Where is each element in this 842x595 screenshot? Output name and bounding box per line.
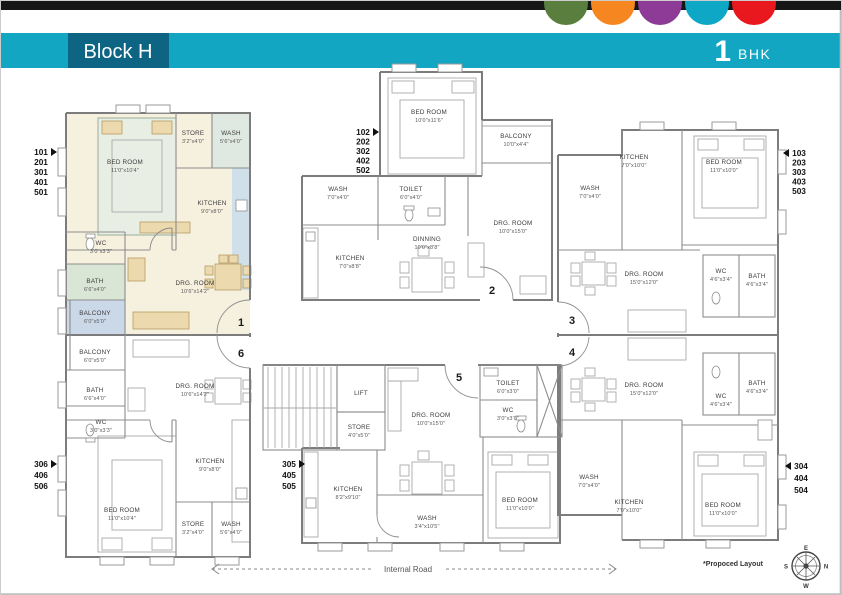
room-label-u1-bedroom: BED ROOM (107, 159, 143, 166)
room-label-u5-kitchen: KITCHEN (333, 486, 362, 493)
room-label-u2-kitchen: KITCHEN (335, 255, 364, 262)
room-label-u4-kitchen: KITCHEN (614, 499, 643, 506)
header: Block H 1 BHK (0, 0, 842, 68)
stack-label: 501 (34, 187, 48, 197)
room-label-u3-wc: WC (716, 268, 727, 275)
room-dims-u6-store: 3'2"x4'0" (182, 530, 204, 536)
stack-mid-top: 102 202 302 402 502 (356, 127, 379, 175)
room-dims-u5-drg: 10'0"x15'0" (417, 421, 445, 427)
room-label-u1-wc: WC (96, 240, 107, 247)
room-dims-u1-wash: 5'6"x4'0" (220, 139, 242, 145)
room-dims-u5-wash: 3'4"x10'5" (414, 524, 439, 530)
room-label-u4-bath: BATH (748, 380, 765, 387)
brand-dot-teal (685, 0, 729, 25)
room-dims-u6-kitchen: 9'0"x8'0" (199, 467, 221, 473)
room-dims-u2-bedroom: 10'0"x11'6" (415, 118, 443, 124)
arrow-right-icon (51, 148, 57, 156)
room-label-u2-balcony: BALCONY (500, 133, 532, 140)
room-dims-u3-wc: 4'6"x3'4" (710, 277, 732, 283)
room-label-u5-wash: WASH (417, 515, 437, 522)
bhk-label: BHK (738, 46, 771, 62)
room-dims-u4-kitchen: 7'0"x10'0" (616, 508, 641, 514)
door-number-3: 3 (569, 315, 575, 327)
room-label-u2-dinning: DINNING (413, 236, 441, 243)
room-dims-u3-bath: 4'6"x3'4" (746, 282, 768, 288)
room-dims-u6-drg: 10'6"x14'2" (181, 392, 209, 398)
room-dims-u1-drg: 10'6"x14'2" (181, 289, 209, 295)
brand-dot-green (544, 0, 588, 25)
stack-label: 404 (794, 473, 808, 483)
room-label-u5-drg: DRG. ROOM (412, 412, 451, 419)
stack-label: 201 (34, 157, 48, 167)
arrow-right-icon (373, 128, 379, 136)
door-number-4: 4 (569, 347, 576, 359)
stack-right-bottom: 304 404 504 (785, 461, 808, 495)
room-label-u3-kitchen: KITCHEN (619, 154, 648, 161)
stack-label: 103 (792, 148, 806, 158)
room-dims-u4-wash: 7'0"x4'0" (578, 483, 600, 489)
stack-label: 406 (34, 470, 48, 480)
compass-rose: E N S W (784, 546, 828, 590)
floor-plan-page: Block H 1 BHK (0, 0, 842, 595)
compass-right-label: N (824, 565, 828, 571)
room-dims-u4-drg: 15'0"x12'0" (630, 391, 658, 397)
stack-left-bottom: 306 406 506 (34, 459, 57, 491)
room-dims-u4-wc: 4'6"x3'4" (710, 402, 732, 408)
bhk-number: 1 (714, 35, 731, 68)
door-number-6: 6 (238, 348, 244, 360)
room-dims-u1-balcony: 6'0"x5'0" (84, 319, 106, 325)
arrow-right-icon (51, 460, 57, 468)
room-dims-u3-drg: 15'0"x12'0" (630, 280, 658, 286)
room-label-u3-wash: WASH (580, 185, 600, 192)
room-label-u1-wash: WASH (221, 130, 241, 137)
room-label-u2-drg: DRG. ROOM (494, 220, 533, 227)
stack-label: 301 (34, 167, 48, 177)
room-label-u5-wc: WC (503, 407, 514, 414)
room-label-u2-wash: WASH (328, 186, 348, 193)
room-dims-u2-wash: 7'0"x4'0" (327, 195, 349, 201)
room-label-u6-bath: BATH (86, 387, 103, 394)
room-label-u6-store: STORE (182, 521, 205, 528)
compass-bottom-label: W (803, 584, 809, 590)
room-label-u5-store: STORE (348, 424, 371, 431)
room-dims-u1-bath: 6'6"x4'0" (84, 287, 106, 293)
room-label-u3-bedroom: BED ROOM (706, 159, 742, 166)
stack-label: 202 (356, 137, 370, 147)
room-label-u6-bedroom: BED ROOM (104, 507, 140, 514)
room-label-u1-bath: BATH (86, 278, 103, 285)
room-label-u5-bedroom: BED ROOM (502, 497, 538, 504)
stack-label: 303 (792, 167, 806, 177)
room-dims-u2-balcony: 10'0"x4'4" (503, 142, 528, 148)
room-dims-u3-kitchen: 7'0"x10'0" (621, 163, 646, 169)
room-dims-u5-kitchen: 8'2"x9'10" (335, 495, 360, 501)
internal-road-label: Internal Road (384, 565, 432, 574)
room-label-u1-kitchen: KITCHEN (197, 200, 226, 207)
room-dims-u6-wash: 5'6"x4'0" (220, 530, 242, 536)
stack-label: 403 (792, 177, 806, 187)
room-label-u2-toilet: TOILET (399, 186, 422, 193)
room-dims-u4-bath: 4'6"x3'4" (746, 389, 768, 395)
stack-label: 502 (356, 165, 370, 175)
room-dims-u5-wc: 3'0"x3'0" (497, 416, 519, 422)
room-dims-u6-balcony: 6'0"x5'0" (84, 358, 106, 364)
room-label-u3-bath: BATH (748, 273, 765, 280)
floor-plan-canvas: Block H 1 BHK (0, 0, 842, 595)
room-dims-u6-bath: 6'6"x4'0" (84, 396, 106, 402)
room-dims-u5-store: 4'0"x5'0" (348, 433, 370, 439)
stack-label: 401 (34, 177, 48, 187)
room-label-u1-store: STORE (182, 130, 205, 137)
door-number-5: 5 (456, 372, 462, 384)
room-dims-u3-bedroom: 11'0"x10'0" (710, 168, 738, 174)
stack-label: 203 (792, 158, 806, 168)
room-label-u6-kitchen: KITCHEN (195, 458, 224, 465)
room-label-u6-drg: DRG. ROOM (176, 383, 215, 390)
compass-left-label: S (784, 565, 788, 571)
room-label-u6-wc: WC (96, 419, 107, 426)
unit6-labels: BALCONY 6'0"x5'0" BATH 6'6"x4'0" WC 3'0"… (79, 349, 242, 536)
stack-label: 306 (34, 459, 48, 469)
stack-label: 402 (356, 156, 370, 166)
stack-label: 101 (34, 147, 48, 157)
room-dims-u3-wash: 7'0"x4'0" (579, 194, 601, 200)
door-number-1: 1 (238, 317, 244, 329)
compass-top-label: E (804, 546, 808, 552)
room-dims-u2-toilet: 6'0"x4'0" (400, 195, 422, 201)
room-label-u3-drg: DRG. ROOM (625, 271, 664, 278)
stack-label: 302 (356, 146, 370, 156)
brand-dot-red (732, 0, 776, 25)
stack-label: 304 (794, 461, 808, 471)
room-dims-u2-dinning: 10'0"x8'8" (414, 245, 439, 251)
room-label-u5-lift: LIFT (354, 390, 368, 397)
room-label-u1-balcony: BALCONY (79, 310, 111, 317)
room-dims-u2-drg: 10'0"x15'0" (499, 229, 527, 235)
room-dims-u5-toilet: 6'0"x3'0" (497, 389, 519, 395)
room-label-u4-wash: WASH (579, 474, 599, 481)
room-dims-u6-wc: 3'0"x3'3" (90, 428, 112, 434)
room-dims-u2-kitchen: 7'0"x8'8" (339, 264, 361, 270)
stack-label: 503 (792, 186, 806, 196)
room-label-u2-bedroom: BED ROOM (411, 109, 447, 116)
block-title: Block H (84, 41, 153, 63)
door-number-2: 2 (489, 285, 495, 297)
stack-label: 405 (282, 470, 296, 480)
room-dims-u1-kitchen: 9'0"x8'0" (201, 209, 223, 215)
room-dims-u6-bedroom: 11'0"x10'4" (108, 516, 136, 522)
brand-dot-purple (638, 0, 682, 25)
stack-label: 506 (34, 481, 48, 491)
room-dims-u5-bedroom: 11'0"x10'0" (506, 506, 534, 512)
room-label-u4-bedroom: BED ROOM (705, 502, 741, 509)
room-label-u6-balcony: BALCONY (79, 349, 111, 356)
room-label-u5-toilet: TOILET (496, 380, 519, 387)
footer: Internal Road *Propoced Layout E N S W (212, 546, 828, 590)
stack-label: 505 (282, 481, 296, 491)
room-dims-u4-bedroom: 11'0"x10'0" (709, 511, 737, 517)
stack-label: 102 (356, 127, 370, 137)
room-dims-u1-bedroom: 11'0"x10'4" (111, 168, 139, 174)
room-dims-u1-wc: 3'0"x3'3" (90, 249, 112, 255)
room-label-u1-drg: DRG. ROOM (176, 280, 215, 287)
room-label-u4-wc: WC (716, 393, 727, 400)
room-dims-u1-store: 3'2"x4'0" (182, 139, 204, 145)
stack-left-top: 101 201 301 401 501 (34, 147, 57, 197)
stack-label: 305 (282, 459, 296, 469)
brand-dot-orange (591, 0, 635, 25)
room-label-u6-wash: WASH (221, 521, 241, 528)
staircase (263, 365, 337, 450)
room-label-u4-drg: DRG. ROOM (625, 382, 664, 389)
proposed-layout-note: *Propoced Layout (703, 561, 764, 568)
unit5-furniture (304, 368, 558, 538)
stack-label: 504 (794, 485, 808, 495)
